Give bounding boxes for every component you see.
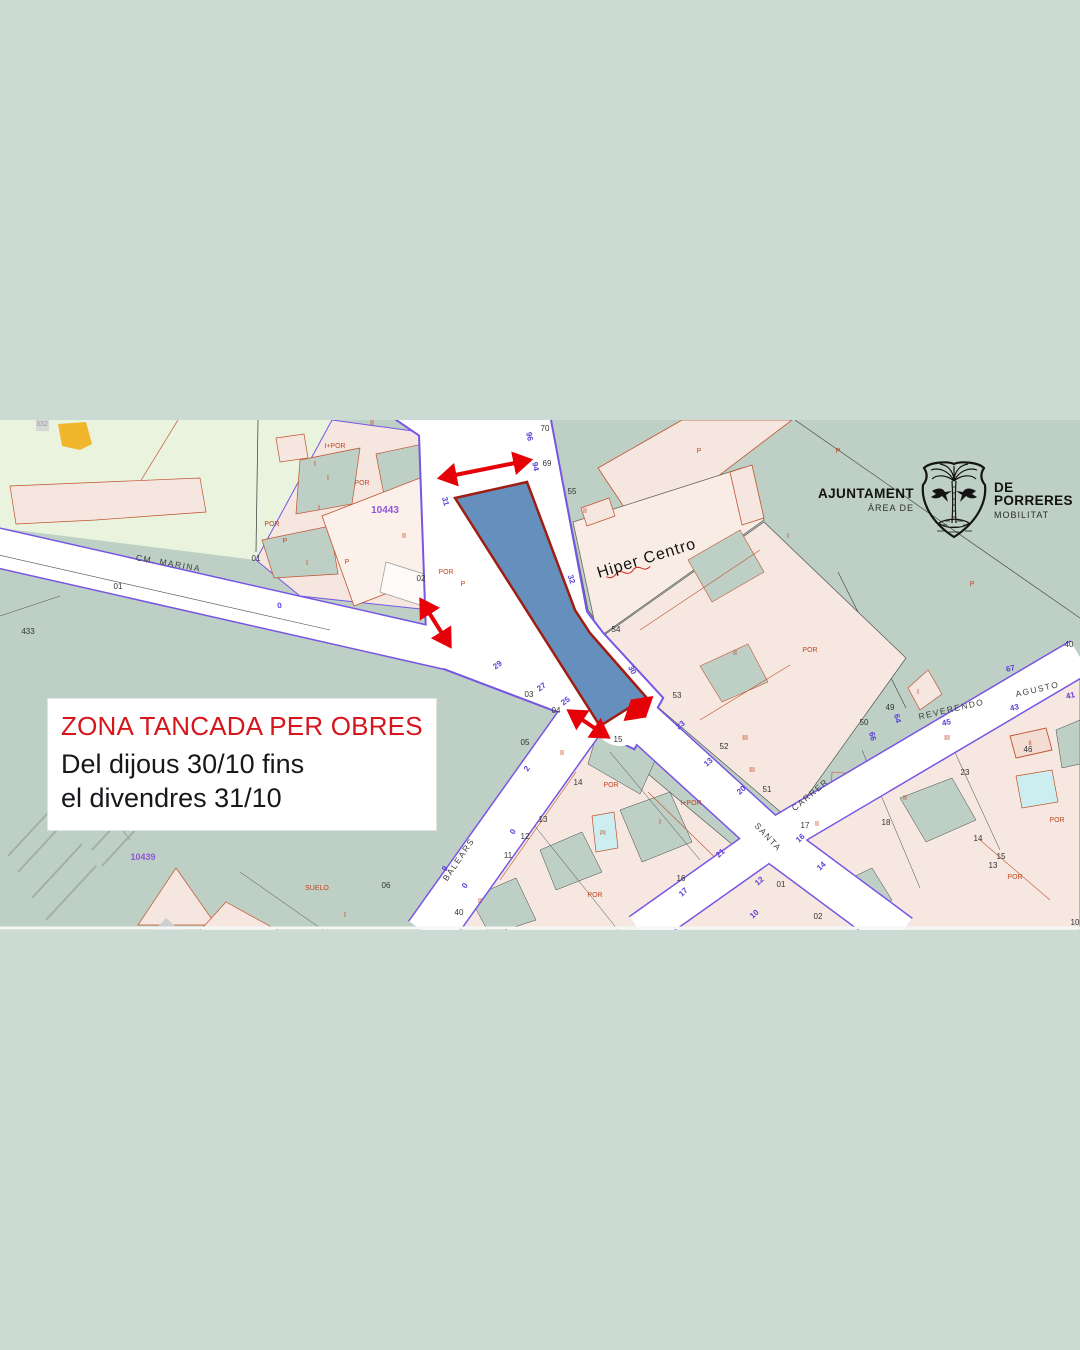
map-label: I <box>318 505 320 512</box>
map-label: POR <box>1007 874 1022 881</box>
map-label: II <box>478 898 482 905</box>
notice-box: ZONA TANCADA PER OBRES Del dijous 30/10 … <box>47 698 437 831</box>
map-label: III <box>749 767 755 774</box>
map-label: 01 <box>252 554 261 563</box>
map-label: 13 <box>539 815 548 824</box>
map-label: II <box>733 650 737 657</box>
map-label: POR <box>587 892 602 899</box>
map-label: 04 <box>552 706 561 715</box>
map-label: 15 <box>614 735 623 744</box>
map-label: 13 <box>989 861 998 870</box>
map-label: II <box>560 750 564 757</box>
map-label: POR <box>264 521 279 528</box>
map-label: POR <box>354 480 369 487</box>
map-label: 55 <box>568 487 577 496</box>
map-label: POR <box>1049 817 1064 824</box>
map-label: I+POR <box>680 800 701 807</box>
map-label: III <box>742 735 748 742</box>
map-label: I <box>327 475 329 482</box>
map-label: II <box>583 508 587 515</box>
coat-of-arms-icon <box>919 461 989 541</box>
logo-right-text: DE PORRERES MOBILITAT <box>994 481 1074 522</box>
map-label: 02 <box>814 912 823 921</box>
municipality-logo: AJUNTAMENT ÀREA DE DE PORRERES MOBILITAT <box>818 455 1074 547</box>
notice-line2: el divendres 31/10 <box>61 781 436 815</box>
map-label: 52 <box>720 742 729 751</box>
map-label: 01 <box>777 880 786 889</box>
map-label: II <box>370 420 374 427</box>
map-label: P <box>697 448 702 455</box>
map-label: 16 <box>677 874 686 883</box>
map-label: II <box>1028 741 1032 747</box>
map-label: P <box>461 581 466 588</box>
map-label: 14 <box>574 778 583 787</box>
map-label: 50 <box>860 718 869 727</box>
map-label: 69 <box>543 459 552 468</box>
map-label: PI <box>600 831 606 837</box>
map-label: 70 <box>541 424 550 433</box>
map-label: 03 <box>525 690 534 699</box>
map-label: 10443 <box>371 505 399 516</box>
map-label: 17 <box>801 821 810 830</box>
map-label: 51 <box>763 785 772 794</box>
logo-left-text: AJUNTAMENT ÀREA DE <box>818 487 914 515</box>
map-label: I <box>659 819 661 826</box>
map-label: 10439 <box>130 852 155 862</box>
logo-org: AJUNTAMENT <box>818 487 914 500</box>
map-label: 53 <box>673 691 682 700</box>
map-label: 15 <box>997 852 1006 861</box>
map-label: P <box>345 559 350 566</box>
map-label: 433 <box>21 627 35 636</box>
map-label: II <box>815 821 819 828</box>
map-label: II <box>903 795 907 802</box>
map-label: 01 <box>114 582 123 591</box>
map-label: III <box>944 735 950 742</box>
map-label: I <box>314 461 316 468</box>
map-label: SUELO <box>305 885 329 892</box>
map-label: I <box>306 560 308 567</box>
logo-area-sub: MOBILITAT <box>994 509 1074 522</box>
map-label: 49 <box>886 703 895 712</box>
map-label: 54 <box>612 625 621 634</box>
map-label: I+POR <box>324 443 345 450</box>
map-label: POR <box>603 782 618 789</box>
notice-title: ZONA TANCADA PER OBRES <box>61 711 436 742</box>
map-label: 11 <box>504 851 513 860</box>
map-label: I <box>917 689 919 696</box>
map-label: II <box>402 533 406 540</box>
map-label: P <box>970 581 975 588</box>
map-label: POR <box>802 647 817 654</box>
map-label: 40 <box>455 908 464 917</box>
notice-line1: Del dijous 30/10 fins <box>61 747 436 781</box>
map-label: 12 <box>521 832 530 841</box>
map-label: 332 <box>36 421 48 428</box>
logo-org-sub: ÀREA DE <box>818 502 914 515</box>
map-label: 18 <box>882 818 891 827</box>
map-label: 23 <box>961 768 970 777</box>
map-label: 14 <box>974 834 983 843</box>
announcement-page: CM. MARINABALEARSSANTACARRERREVERENDOAGU… <box>0 0 1080 1350</box>
map-label: 06 <box>382 881 391 890</box>
map-label: I <box>787 533 789 540</box>
map-label: POR <box>438 569 453 576</box>
map-label: 40 <box>1065 640 1074 649</box>
map-label: P <box>836 448 841 455</box>
map-label: I <box>344 912 346 919</box>
logo-area: DE PORRERES <box>994 481 1074 507</box>
map-label: 10 <box>1071 918 1080 927</box>
map-label: 05 <box>521 738 530 747</box>
map-label: P <box>283 538 288 545</box>
map-label: 02 <box>417 574 426 583</box>
